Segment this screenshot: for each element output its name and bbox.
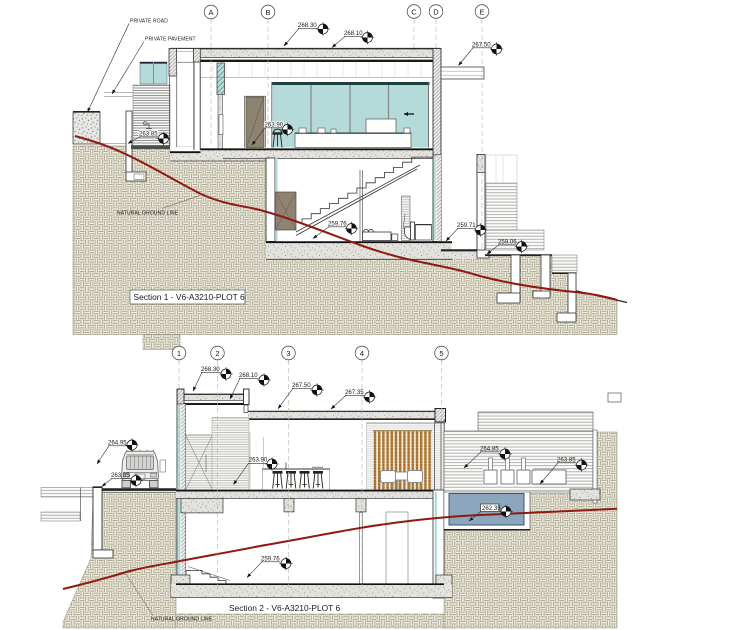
svg-text:263.90: 263.90 xyxy=(265,122,284,129)
svg-text:264.85: 264.85 xyxy=(480,446,499,453)
svg-text:263.85: 263.85 xyxy=(557,457,576,464)
svg-text:PRIVATE ROAD: PRIVATE ROAD xyxy=(130,19,168,25)
svg-text:267.50: 267.50 xyxy=(472,42,491,49)
svg-text:Section 1 - V6-A3210-PLOT 6: Section 1 - V6-A3210-PLOT 6 xyxy=(134,292,245,302)
svg-text:268.30: 268.30 xyxy=(298,22,317,29)
svg-text:4: 4 xyxy=(360,349,364,358)
svg-text:268.30: 268.30 xyxy=(201,366,220,373)
svg-text:PRIVATE PAVEMENT: PRIVATE PAVEMENT xyxy=(145,37,196,43)
svg-text:259.71: 259.71 xyxy=(457,222,476,229)
svg-text:A: A xyxy=(208,8,213,17)
svg-text:263.85: 263.85 xyxy=(139,131,158,138)
svg-text:268.10: 268.10 xyxy=(344,30,363,37)
svg-text:262.35: 262.35 xyxy=(482,505,501,512)
svg-text:267.35: 267.35 xyxy=(345,389,364,396)
svg-text:5: 5 xyxy=(439,349,443,358)
svg-text:Section 2 - V6-A3210-PLOT 6: Section 2 - V6-A3210-PLOT 6 xyxy=(229,603,340,613)
svg-text:D: D xyxy=(433,7,439,16)
svg-text:259.76: 259.76 xyxy=(261,556,280,563)
svg-text:E: E xyxy=(479,7,484,16)
svg-text:268.10: 268.10 xyxy=(239,372,258,379)
svg-text:263.90: 263.90 xyxy=(249,456,268,463)
svg-text:264.95: 264.95 xyxy=(108,440,127,447)
svg-text:B: B xyxy=(265,8,270,17)
svg-text:259.76: 259.76 xyxy=(328,221,347,228)
svg-text:267.50: 267.50 xyxy=(292,382,311,389)
svg-text:NATURAL GROUND LINE: NATURAL GROUND LINE xyxy=(117,211,179,217)
svg-text:263.85: 263.85 xyxy=(111,472,130,479)
svg-text:C: C xyxy=(411,7,417,16)
svg-text:1: 1 xyxy=(177,349,181,358)
svg-text:NATURAL GROUND LINE: NATURAL GROUND LINE xyxy=(151,617,213,623)
svg-text:259.06: 259.06 xyxy=(498,239,517,246)
svg-text:3: 3 xyxy=(286,349,290,358)
svg-text:2: 2 xyxy=(215,349,219,358)
